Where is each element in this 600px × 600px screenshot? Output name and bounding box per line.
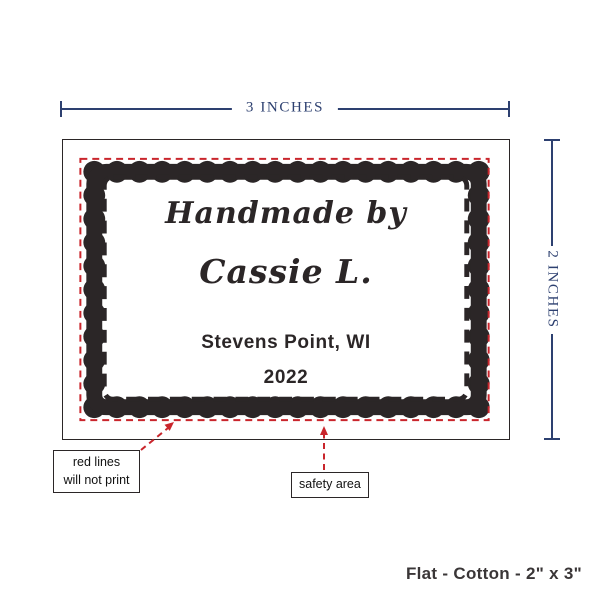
red-lines-callout: red lines will not print <box>53 450 140 493</box>
width-dimension-tick-right <box>508 101 510 117</box>
red-lines-callout-line1: red lines <box>73 455 120 469</box>
label-line-year: 2022 <box>63 366 509 390</box>
height-dimension: 2 INCHES <box>543 139 561 440</box>
safety-area-callout-text: safety area <box>299 477 361 491</box>
width-dimension-tick-left <box>60 101 62 117</box>
red-lines-callout-line2: will not print <box>64 473 130 487</box>
label-line-name: Cassie L. <box>63 252 509 292</box>
width-dimension: 3 INCHES <box>60 93 510 123</box>
width-dimension-label: 3 INCHES <box>232 94 338 123</box>
label-text-block: Handmade by Cassie L. Stevens Point, WI … <box>63 140 509 439</box>
height-dimension-label: 2 INCHES <box>534 246 570 334</box>
height-dimension-text: 2 INCHES <box>544 250 561 328</box>
label-artwork-area: Handmade by Cassie L. Stevens Point, WI … <box>62 139 510 440</box>
safety-area-callout: safety area <box>291 472 369 498</box>
height-dimension-tick-bottom <box>544 438 560 440</box>
product-caption: Flat - Cotton - 2" x 3" <box>406 564 582 584</box>
label-line-location: Stevens Point, WI <box>63 331 509 355</box>
label-line-handmade-by: Handmade by <box>63 196 509 232</box>
label-proof-canvas: 3 INCHES 2 INCHES Handmade by Cassie L. … <box>0 0 600 600</box>
height-dimension-tick-top <box>544 139 560 141</box>
